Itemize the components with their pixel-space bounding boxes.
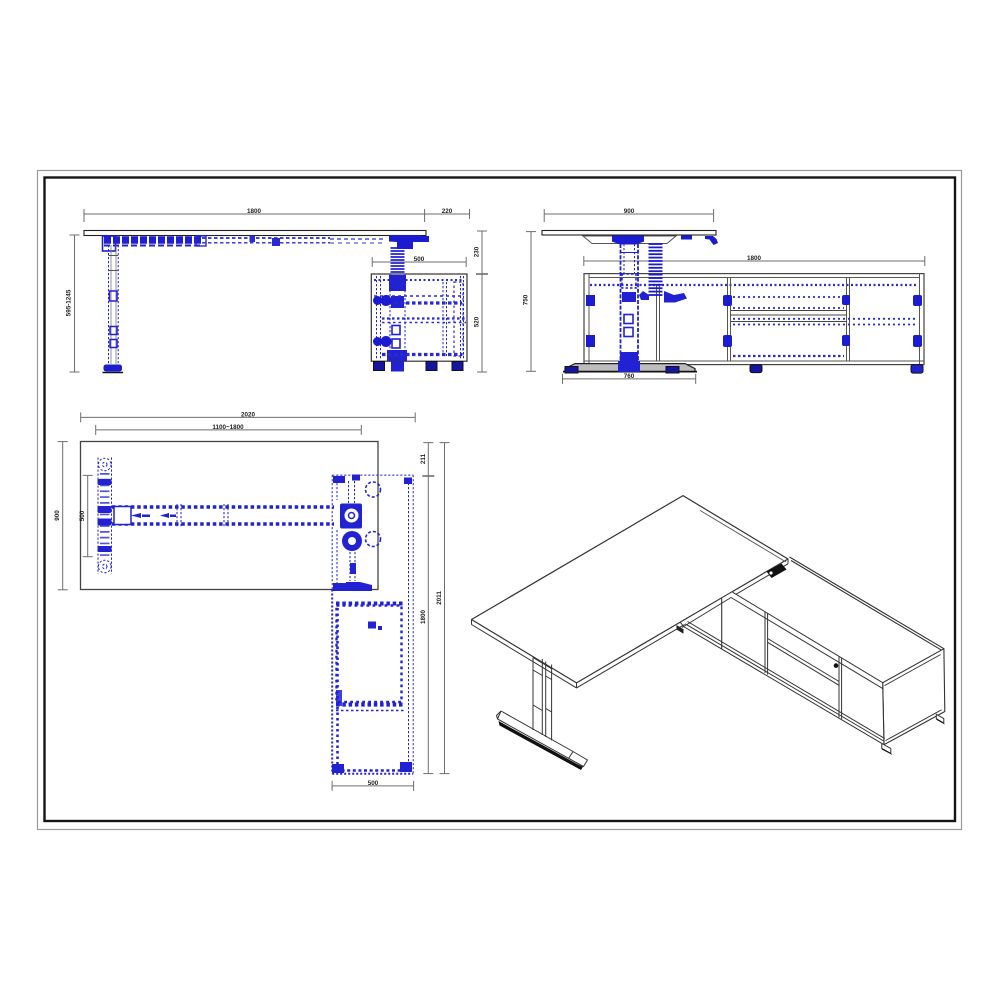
svg-text:595-1245: 595-1245 (66, 289, 73, 316)
svg-text:520: 520 (474, 316, 481, 327)
svg-text:1800: 1800 (247, 208, 262, 215)
svg-text:211: 211 (420, 453, 427, 464)
svg-text:1800: 1800 (747, 255, 762, 262)
svg-text:220: 220 (442, 208, 453, 215)
svg-text:1100~1800: 1100~1800 (212, 424, 244, 431)
svg-text:230: 230 (474, 246, 481, 257)
svg-text:900: 900 (624, 208, 635, 215)
svg-text:2020: 2020 (241, 411, 256, 418)
svg-text:500: 500 (414, 256, 425, 263)
svg-text:750: 750 (523, 294, 530, 305)
svg-text:1800: 1800 (420, 610, 427, 625)
svg-text:760: 760 (624, 373, 635, 380)
svg-text:2011: 2011 (436, 591, 443, 605)
svg-text:900: 900 (54, 510, 61, 521)
svg-text:500: 500 (79, 510, 86, 521)
svg-text:500: 500 (368, 780, 379, 787)
